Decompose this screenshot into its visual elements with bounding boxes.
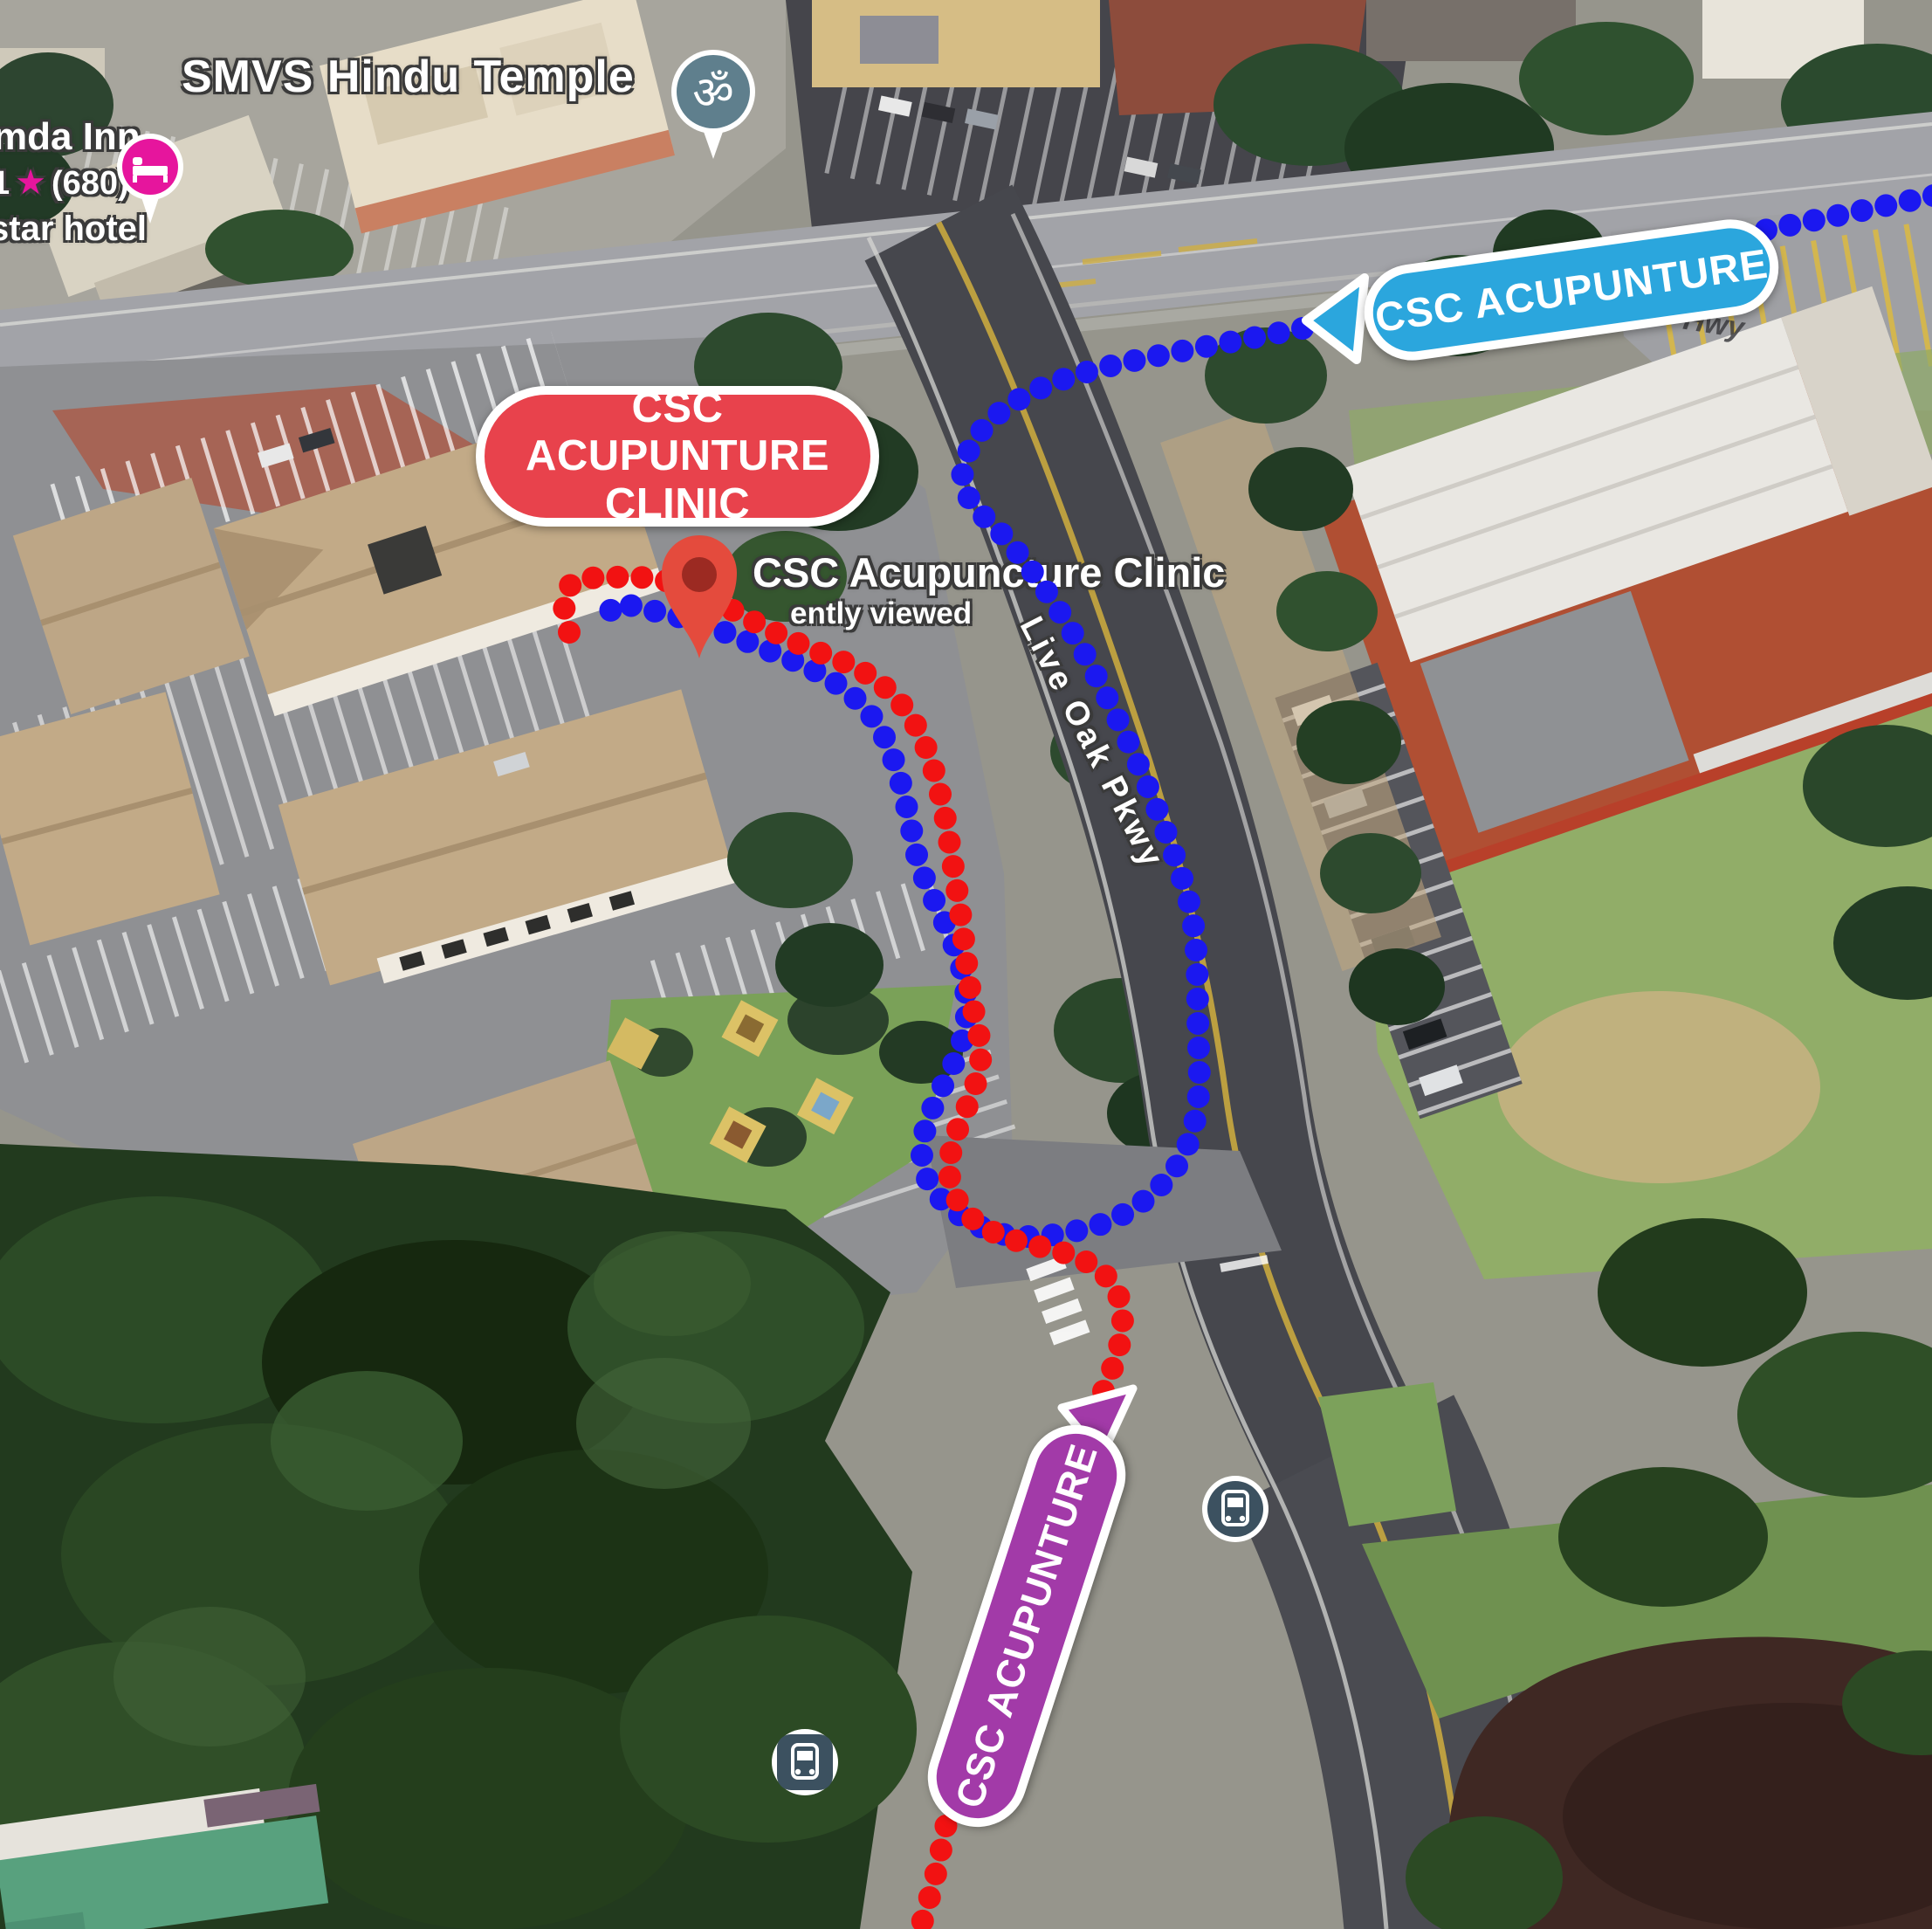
destination-callout[interactable]: CSC ACUPUNTURE CLINIC xyxy=(476,386,879,527)
blue-route-arrow-icon xyxy=(1306,278,1365,360)
map-canvas[interactable]: SMVS Hindu Temple mda Inn 1★(680) star h… xyxy=(0,0,1932,1929)
destination-callout-line1: CSC ACUPUNTURE xyxy=(485,384,870,480)
destination-callout-line2: CLINIC xyxy=(605,480,750,528)
